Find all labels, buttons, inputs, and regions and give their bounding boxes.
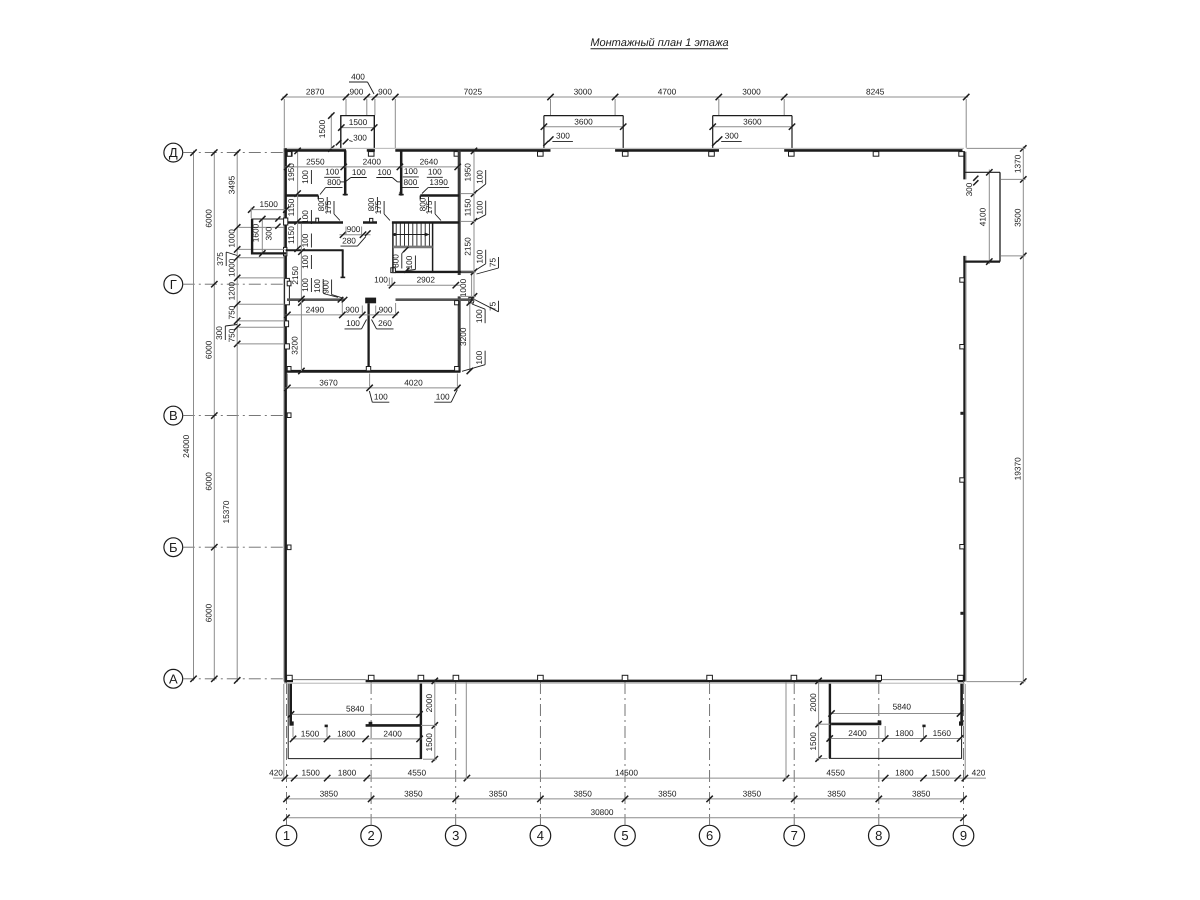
svg-text:1150: 1150 bbox=[286, 198, 296, 216]
svg-text:375: 375 bbox=[215, 252, 225, 266]
svg-text:1500: 1500 bbox=[424, 733, 434, 752]
svg-text:900: 900 bbox=[320, 280, 330, 294]
svg-text:2400: 2400 bbox=[363, 156, 382, 166]
svg-text:3850: 3850 bbox=[489, 788, 508, 798]
svg-text:2902: 2902 bbox=[417, 274, 436, 284]
svg-text:260: 260 bbox=[378, 318, 392, 328]
svg-text:100: 100 bbox=[352, 167, 366, 177]
svg-text:Д: Д bbox=[169, 145, 178, 160]
svg-text:4550: 4550 bbox=[408, 768, 427, 778]
svg-text:800: 800 bbox=[327, 177, 341, 187]
svg-text:Г: Г bbox=[170, 277, 177, 292]
svg-text:750: 750 bbox=[226, 328, 236, 342]
svg-text:3850: 3850 bbox=[404, 788, 423, 798]
svg-text:3850: 3850 bbox=[743, 788, 762, 798]
svg-text:300: 300 bbox=[353, 133, 367, 143]
svg-text:100: 100 bbox=[428, 167, 442, 177]
svg-text:100: 100 bbox=[475, 200, 485, 214]
svg-text:400: 400 bbox=[351, 72, 365, 82]
svg-text:Б: Б bbox=[169, 540, 178, 555]
svg-text:420: 420 bbox=[269, 767, 283, 777]
svg-text:100: 100 bbox=[475, 170, 485, 184]
svg-text:75: 75 bbox=[487, 258, 497, 268]
svg-text:4100: 4100 bbox=[978, 207, 988, 226]
svg-text:900: 900 bbox=[347, 224, 361, 234]
svg-text:1500: 1500 bbox=[349, 117, 368, 127]
svg-text:7025: 7025 bbox=[464, 86, 483, 96]
svg-text:9: 9 bbox=[960, 828, 967, 843]
svg-text:100: 100 bbox=[300, 233, 310, 247]
svg-text:800: 800 bbox=[403, 177, 417, 187]
svg-text:750: 750 bbox=[226, 305, 236, 319]
svg-text:3500: 3500 bbox=[1013, 208, 1023, 227]
svg-text:1800: 1800 bbox=[895, 768, 914, 778]
svg-text:3000: 3000 bbox=[742, 86, 761, 96]
svg-text:Монтажный план 1 этажа: Монтажный план 1 этажа bbox=[590, 37, 728, 49]
svg-text:2150: 2150 bbox=[462, 237, 472, 256]
svg-text:15370: 15370 bbox=[221, 500, 231, 523]
svg-text:100: 100 bbox=[300, 255, 310, 269]
svg-text:1000: 1000 bbox=[226, 229, 236, 248]
svg-text:800: 800 bbox=[391, 254, 401, 268]
svg-text:1150: 1150 bbox=[286, 226, 296, 244]
svg-text:1950: 1950 bbox=[286, 163, 296, 182]
svg-text:7: 7 bbox=[791, 828, 798, 843]
svg-text:100: 100 bbox=[475, 249, 485, 263]
svg-text:1200: 1200 bbox=[226, 281, 236, 300]
svg-text:В: В bbox=[169, 408, 178, 423]
svg-text:100: 100 bbox=[404, 166, 418, 176]
svg-text:1800: 1800 bbox=[895, 728, 914, 738]
svg-text:1500: 1500 bbox=[931, 768, 950, 778]
svg-text:3850: 3850 bbox=[573, 788, 592, 798]
svg-text:100: 100 bbox=[374, 392, 388, 402]
svg-text:1600: 1600 bbox=[251, 223, 261, 242]
svg-text:2400: 2400 bbox=[848, 728, 867, 738]
svg-text:300: 300 bbox=[264, 226, 274, 240]
svg-text:100: 100 bbox=[404, 255, 414, 269]
svg-text:3200: 3200 bbox=[290, 336, 300, 355]
svg-text:1000: 1000 bbox=[226, 258, 236, 277]
svg-text:А: А bbox=[169, 671, 178, 686]
svg-text:6000: 6000 bbox=[204, 209, 214, 228]
svg-text:30800: 30800 bbox=[590, 807, 613, 817]
svg-text:2400: 2400 bbox=[383, 728, 402, 738]
svg-text:3850: 3850 bbox=[827, 788, 846, 798]
svg-text:3600: 3600 bbox=[743, 116, 762, 126]
svg-text:900: 900 bbox=[345, 304, 359, 314]
svg-text:300: 300 bbox=[725, 131, 739, 141]
svg-text:24000: 24000 bbox=[181, 434, 191, 457]
svg-text:2000: 2000 bbox=[424, 693, 434, 712]
svg-text:75: 75 bbox=[487, 301, 497, 311]
svg-text:3850: 3850 bbox=[912, 788, 931, 798]
svg-text:300: 300 bbox=[556, 131, 570, 141]
svg-text:3850: 3850 bbox=[658, 788, 677, 798]
svg-text:175: 175 bbox=[373, 200, 383, 214]
svg-text:100: 100 bbox=[325, 167, 339, 177]
svg-text:900: 900 bbox=[378, 86, 392, 96]
svg-text:900: 900 bbox=[379, 304, 393, 314]
svg-text:4700: 4700 bbox=[658, 86, 677, 96]
svg-text:900: 900 bbox=[349, 86, 363, 96]
svg-text:100: 100 bbox=[436, 392, 450, 402]
svg-text:6000: 6000 bbox=[204, 603, 214, 622]
svg-text:2150: 2150 bbox=[290, 266, 300, 285]
svg-text:2550: 2550 bbox=[306, 156, 325, 166]
svg-text:1000: 1000 bbox=[458, 278, 468, 297]
svg-text:1950: 1950 bbox=[462, 163, 472, 182]
svg-text:5: 5 bbox=[621, 828, 628, 843]
svg-text:1150: 1150 bbox=[462, 198, 472, 216]
svg-text:2640: 2640 bbox=[420, 156, 439, 166]
svg-text:1500: 1500 bbox=[301, 768, 320, 778]
svg-text:2490: 2490 bbox=[306, 304, 325, 314]
svg-text:100: 100 bbox=[377, 167, 391, 177]
svg-text:4: 4 bbox=[537, 828, 544, 843]
svg-text:3200: 3200 bbox=[458, 327, 468, 346]
svg-text:3600: 3600 bbox=[574, 116, 593, 126]
svg-text:3850: 3850 bbox=[320, 788, 339, 798]
svg-text:6000: 6000 bbox=[204, 472, 214, 491]
svg-text:100: 100 bbox=[374, 274, 388, 284]
svg-text:175: 175 bbox=[424, 200, 434, 214]
svg-text:1: 1 bbox=[283, 828, 290, 843]
svg-text:3000: 3000 bbox=[574, 86, 593, 96]
svg-text:5840: 5840 bbox=[893, 702, 912, 712]
svg-text:19370: 19370 bbox=[1013, 457, 1023, 480]
svg-text:1800: 1800 bbox=[337, 728, 356, 738]
svg-text:2000: 2000 bbox=[808, 693, 818, 712]
svg-text:100: 100 bbox=[300, 170, 310, 184]
svg-text:3: 3 bbox=[452, 828, 459, 843]
svg-text:100: 100 bbox=[474, 309, 484, 323]
svg-text:100: 100 bbox=[300, 278, 310, 292]
svg-text:2: 2 bbox=[367, 828, 374, 843]
svg-text:300: 300 bbox=[214, 326, 224, 340]
svg-text:8245: 8245 bbox=[866, 86, 885, 96]
svg-text:3670: 3670 bbox=[319, 377, 338, 387]
svg-text:14500: 14500 bbox=[615, 768, 638, 778]
svg-text:1500: 1500 bbox=[301, 728, 320, 738]
svg-text:1500: 1500 bbox=[259, 199, 278, 209]
svg-text:4020: 4020 bbox=[404, 377, 423, 387]
svg-text:1370: 1370 bbox=[1013, 154, 1023, 173]
svg-text:420: 420 bbox=[972, 767, 986, 777]
svg-text:100: 100 bbox=[346, 318, 360, 328]
svg-text:1390: 1390 bbox=[429, 177, 448, 187]
svg-text:2870: 2870 bbox=[306, 86, 325, 96]
svg-text:6: 6 bbox=[706, 828, 713, 843]
svg-text:6000: 6000 bbox=[204, 340, 214, 359]
svg-text:1500: 1500 bbox=[317, 119, 327, 138]
svg-text:1800: 1800 bbox=[338, 768, 357, 778]
svg-text:280: 280 bbox=[342, 235, 356, 245]
svg-text:3495: 3495 bbox=[226, 175, 236, 194]
svg-text:1500: 1500 bbox=[808, 732, 818, 751]
svg-text:100: 100 bbox=[300, 210, 310, 224]
svg-text:300: 300 bbox=[964, 182, 974, 196]
svg-text:1560: 1560 bbox=[933, 728, 952, 738]
svg-text:5840: 5840 bbox=[346, 703, 365, 713]
svg-text:100: 100 bbox=[474, 350, 484, 364]
svg-text:8: 8 bbox=[875, 828, 882, 843]
svg-text:4550: 4550 bbox=[826, 768, 845, 778]
svg-text:175: 175 bbox=[323, 200, 333, 214]
